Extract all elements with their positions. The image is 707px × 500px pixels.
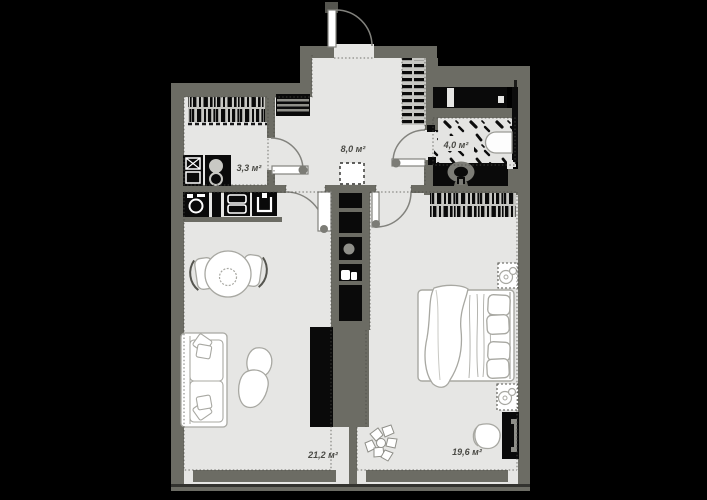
svg-text:19,6 м²: 19,6 м²: [452, 447, 483, 457]
svg-text:21,2 м²: 21,2 м²: [307, 450, 339, 460]
svg-text:3,3 м²: 3,3 м²: [237, 163, 263, 173]
svg-text:8,0 м²: 8,0 м²: [341, 144, 367, 154]
svg-text:4,0 м²: 4,0 м²: [443, 140, 470, 150]
